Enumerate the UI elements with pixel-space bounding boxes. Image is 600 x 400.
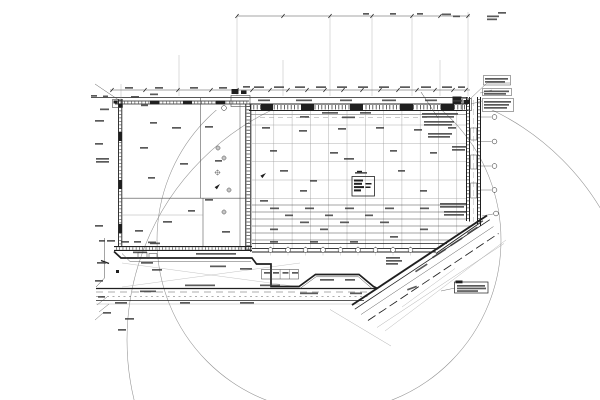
annotation-text: [386, 263, 398, 265]
annotation-text: [386, 260, 402, 262]
annotation-text: [135, 230, 143, 232]
grid-bubble: [492, 188, 497, 193]
annotation-text: [125, 87, 133, 89]
annotation-text: [485, 81, 505, 83]
detail-fill: [366, 187, 371, 189]
annotation-text: [270, 229, 278, 231]
annotation-text: [300, 116, 309, 118]
annotation-text: [300, 293, 318, 295]
annotation-text: [274, 86, 284, 88]
annotation-text: [340, 222, 349, 224]
annotation-text: [264, 272, 270, 274]
annotation-text: [428, 133, 452, 135]
annotation-text: [152, 269, 162, 271]
annotation-text: [292, 272, 298, 274]
annotation-text: [320, 229, 328, 231]
annotation-text: [350, 293, 362, 295]
annotation-text: [148, 242, 156, 244]
grid-bubble: [222, 106, 227, 111]
annotation-text: [190, 87, 198, 89]
annotation-text: [188, 210, 195, 212]
annotation-text: [240, 268, 252, 270]
annotation-text: [133, 252, 147, 254]
annotation-text: [342, 117, 355, 119]
annotation-text: [260, 285, 280, 287]
annotation-text: [440, 203, 466, 205]
annotation-text: [131, 96, 139, 98]
annotation-text: [254, 86, 264, 88]
annotation-text: [121, 241, 129, 243]
annotation-text: [484, 104, 509, 106]
detail-fill: [456, 281, 463, 284]
annotation-text: [285, 215, 293, 217]
annotation-text: [485, 78, 508, 80]
annotation-text: [422, 116, 454, 118]
annotation-text: [360, 112, 371, 114]
annotation-text: [390, 150, 397, 152]
detail-fill: [119, 104, 123, 108]
annotation-text: [118, 329, 126, 331]
annotation-text: [444, 214, 464, 216]
annotation-text: [444, 211, 466, 213]
annotation-text: [338, 128, 346, 130]
annotation-text: [484, 93, 506, 95]
annotation-text: [205, 126, 213, 128]
annotation-text: [305, 208, 314, 210]
annotation-text: [299, 130, 307, 132]
annotation-text: [345, 208, 354, 210]
annotation-text: [390, 13, 396, 15]
grid-bubble: [492, 139, 497, 144]
annotation-text: [386, 257, 400, 259]
annotation-text: [98, 296, 105, 298]
annotation-text: [484, 101, 511, 103]
grid-bubble: [268, 248, 273, 253]
annotation-text: [365, 215, 373, 217]
annotation-text: [270, 208, 279, 210]
annotation-text: [222, 231, 230, 233]
annotation-text: [148, 177, 155, 179]
annotation-text: [300, 222, 309, 224]
annotation-text: [421, 86, 431, 88]
annotation-text: [141, 262, 153, 264]
annotation-text: [91, 95, 97, 97]
annotation-text: [442, 86, 452, 88]
annotation-text: [205, 199, 213, 201]
annotation-text: [273, 272, 279, 274]
annotation-text: [380, 222, 389, 224]
detail-fill: [116, 270, 119, 273]
annotation-text: [316, 86, 326, 88]
detail-fill: [464, 100, 470, 104]
grid-bubble: [492, 115, 497, 120]
annotation-text: [345, 279, 355, 281]
annotation-text: [95, 280, 103, 282]
annotation-text: [457, 288, 486, 290]
annotation-text: [382, 100, 396, 102]
annotation-text: [270, 150, 277, 152]
annotation-text: [484, 91, 509, 93]
annotation-text: [385, 208, 394, 210]
detail-fill: [354, 183, 362, 185]
grid-bubble: [338, 248, 343, 253]
annotation-text: [283, 272, 289, 274]
site-plan-svg: [0, 0, 600, 400]
annotation-text: [107, 240, 115, 242]
annotation-text: [103, 312, 111, 314]
annotation-text: [210, 266, 226, 268]
annotation-text: [453, 16, 460, 18]
annotation-text: [300, 190, 307, 192]
annotation-text: [180, 163, 188, 165]
annotation-text: [344, 158, 354, 160]
annotation-text: [484, 107, 507, 109]
annotation-text: [414, 129, 422, 131]
grid-bubble: [286, 248, 291, 253]
annotation-text: [99, 240, 105, 242]
annotation-text: [448, 127, 456, 129]
annotation-text: [240, 302, 254, 304]
annotation-text: [422, 113, 458, 115]
annotation-text: [379, 86, 389, 88]
annotation-text: [428, 136, 450, 138]
annotation-text: [258, 100, 270, 102]
annotation-text: [363, 13, 369, 15]
annotation-text: [97, 262, 106, 264]
detail-fill: [114, 101, 118, 104]
annotation-text: [155, 87, 163, 89]
annotation-text: [350, 241, 358, 243]
annotation-text: [185, 285, 215, 287]
annotation-text: [243, 86, 250, 88]
annotation-text: [340, 100, 352, 102]
annotation-text: [95, 120, 104, 122]
annotation-text: [140, 147, 148, 149]
annotation-text: [180, 302, 190, 304]
annotation-text: [390, 236, 398, 238]
annotation-text: [487, 19, 497, 21]
grid-bubble: [373, 248, 378, 253]
annotation-text: [400, 86, 410, 88]
grid-bubble: [356, 248, 361, 253]
annotation-text: [215, 160, 222, 162]
detail-fill: [241, 91, 247, 95]
annotation-text: [196, 253, 236, 255]
annotation-text: [398, 170, 405, 172]
detail-fill: [366, 183, 372, 185]
annotation-text: [163, 221, 172, 223]
annotation-text: [95, 225, 103, 227]
annotation-text: [320, 279, 334, 281]
annotation-text: [310, 241, 318, 243]
detail-fill: [354, 186, 364, 188]
annotation-text: [141, 105, 148, 107]
annotation-text: [358, 86, 368, 88]
annotation-text: [140, 291, 156, 293]
annotation-text: [420, 208, 429, 210]
annotation-text: [280, 170, 288, 172]
annotation-text: [457, 285, 485, 287]
annotation-text: [330, 152, 338, 154]
annotation-text: [417, 13, 423, 15]
annotation-text: [262, 127, 270, 129]
annotation-text: [430, 152, 437, 154]
paper-background: [0, 0, 600, 400]
annotation-text: [115, 302, 127, 304]
annotation-text: [150, 94, 158, 96]
annotation-text: [440, 206, 464, 208]
annotation-text: [355, 172, 367, 174]
annotation-text: [442, 14, 451, 16]
annotation-text: [420, 190, 427, 192]
annotation-text: [270, 241, 278, 243]
annotation-text: [420, 229, 428, 231]
annotation-text: [103, 96, 108, 98]
drawing-sheet: [0, 0, 600, 400]
annotation-text: [452, 146, 467, 148]
annotation-text: [95, 143, 103, 145]
annotation-text: [219, 87, 227, 89]
detail-fill: [354, 180, 363, 182]
annotation-text: [296, 100, 312, 102]
annotation-text: [425, 100, 437, 102]
grid-bubble: [391, 248, 396, 253]
annotation-text: [424, 124, 452, 126]
annotation-text: [96, 161, 109, 163]
annotation-text: [134, 241, 141, 243]
annotation-text: [295, 86, 305, 88]
annotation-text: [150, 122, 157, 124]
grid-bubble: [321, 248, 326, 253]
annotation-text: [172, 127, 181, 129]
grid-bubble: [303, 248, 308, 253]
grid-bubble: [408, 248, 413, 253]
annotation-text: [487, 16, 499, 18]
annotation-text: [260, 200, 268, 202]
grid-bubble: [494, 211, 499, 216]
annotation-text: [100, 109, 109, 111]
annotation-text: [376, 127, 384, 129]
annotation-text: [310, 180, 317, 182]
detail-fill: [354, 189, 361, 191]
annotation-text: [452, 149, 465, 151]
annotation-text: [125, 318, 134, 320]
annotation-text: [453, 100, 462, 102]
annotation-text: [96, 158, 109, 160]
annotation-text: [337, 86, 347, 88]
annotation-text: [458, 86, 465, 88]
annotation-text: [498, 12, 506, 14]
annotation-text: [325, 215, 333, 217]
annotation-text: [424, 121, 454, 123]
annotation-text: [322, 112, 338, 114]
annotation-text: [457, 290, 478, 292]
grid-bubble: [492, 164, 497, 169]
